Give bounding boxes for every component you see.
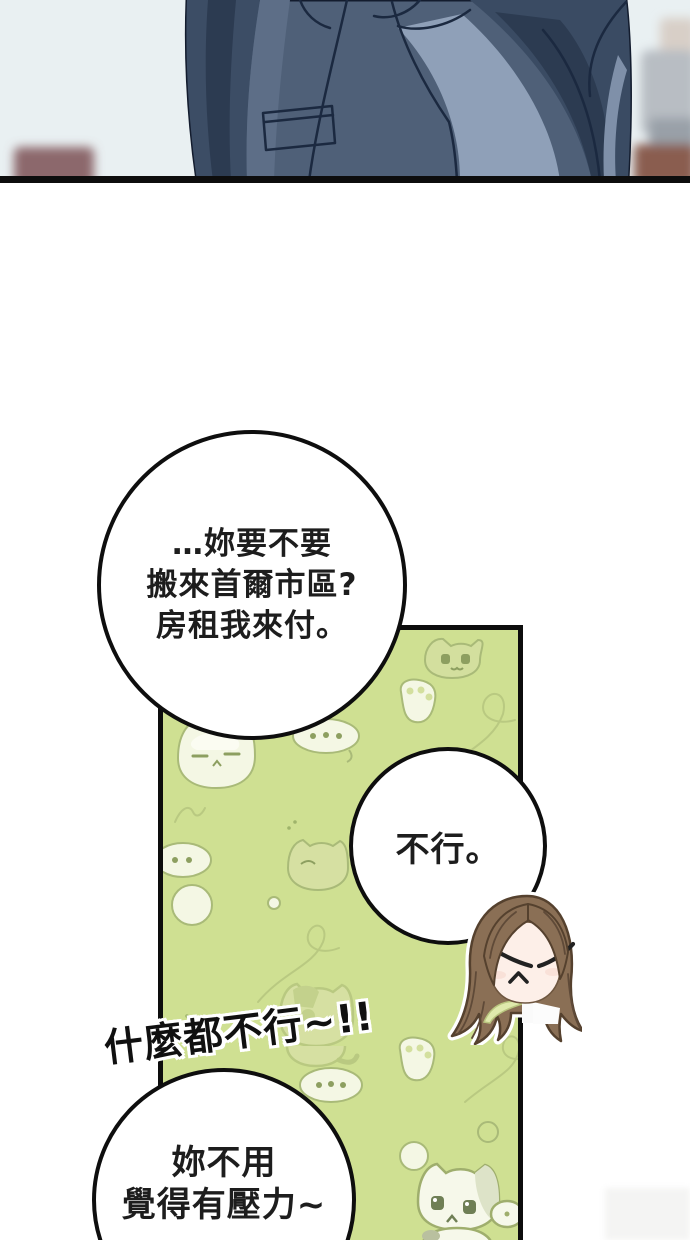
paw-print-motif-2 — [400, 1038, 435, 1081]
paw-print-motif — [401, 680, 436, 723]
suit-jacket — [186, 0, 630, 181]
speech-text: 不行。 — [396, 822, 501, 871]
speech-line: 覺得有壓力~ — [122, 1184, 327, 1226]
speech-line: …妳要不要 — [147, 524, 358, 565]
speech-line: 房租我來付。 — [147, 606, 358, 647]
faint-shape — [605, 1188, 690, 1240]
white-kitten-motif — [418, 1164, 518, 1240]
chibi-head-illustration — [432, 882, 582, 1045]
speech-text: 妳不用 覺得有壓力~ — [122, 1072, 327, 1226]
speech-text: …妳要不要 搬來首爾市區? 房租我來付。 — [147, 524, 358, 647]
suit-illustration — [0, 0, 690, 183]
green-cat-motif — [288, 840, 348, 890]
speech-line: 妳不用 — [122, 1142, 327, 1184]
cat-face-motif — [425, 639, 483, 678]
speech-bubble-offer: …妳要不要 搬來首爾市區? 房租我來付。 — [97, 430, 407, 740]
speech-line: 搬來首爾市區? — [147, 565, 358, 606]
scene-panel — [0, 0, 690, 183]
speech-bubble-reassure: 妳不用 覺得有壓力~ — [92, 1068, 356, 1240]
small-bubble-motifs — [163, 843, 280, 925]
comic-page: …妳要不要 搬來首爾市區? 房租我來付。 不行。 — [0, 0, 690, 1240]
panel-divider — [0, 176, 690, 183]
